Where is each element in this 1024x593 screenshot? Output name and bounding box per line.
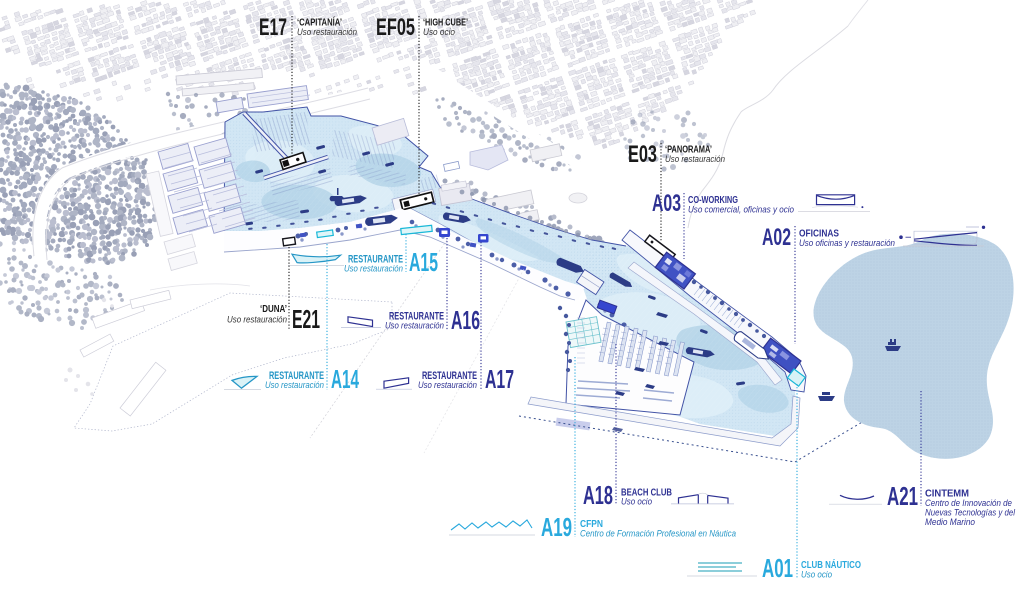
- svg-text:A17: A17: [485, 366, 514, 394]
- svg-text:Centro de Formación Profesiona: Centro de Formación Profesional en Náuti…: [580, 529, 736, 539]
- svg-text:Medio Marino: Medio Marino: [925, 517, 975, 527]
- svg-text:A19: A19: [541, 514, 572, 542]
- svg-text:Uso restauración: Uso restauración: [665, 154, 725, 164]
- svg-text:Uso ocio: Uso ocio: [801, 570, 832, 580]
- svg-text:Uso restauración: Uso restauración: [418, 380, 477, 390]
- svg-text:EF05: EF05: [376, 14, 415, 41]
- svg-text:Uso oficinas y restauración: Uso oficinas y restauración: [799, 238, 895, 248]
- svg-text:Uso restauración: Uso restauración: [227, 315, 287, 325]
- svg-text:E21: E21: [292, 306, 320, 334]
- svg-text:Uso restauración: Uso restauración: [385, 321, 444, 331]
- svg-text:A16: A16: [451, 307, 480, 335]
- svg-text:Uso restauración: Uso restauración: [344, 264, 403, 274]
- svg-text:A14: A14: [331, 366, 359, 394]
- svg-text:Centro de Innovación de: Centro de Innovación de: [925, 498, 1012, 508]
- svg-text:A01: A01: [762, 555, 793, 583]
- svg-text:Nuevas Tecnologías y del: Nuevas Tecnologías y del: [925, 508, 1016, 518]
- svg-text:E17: E17: [259, 14, 287, 41]
- svg-text:A15: A15: [409, 249, 438, 277]
- svg-text:A03: A03: [652, 190, 681, 217]
- svg-text:Uso restauración: Uso restauración: [297, 27, 357, 37]
- svg-text:Uso ocio: Uso ocio: [423, 27, 455, 37]
- svg-text:A02: A02: [762, 224, 791, 251]
- svg-text:A18: A18: [583, 482, 613, 510]
- svg-text:Uso ocio: Uso ocio: [621, 497, 652, 507]
- svg-text:A21: A21: [887, 483, 918, 511]
- svg-text:Uso comercial, oficinas y ocio: Uso comercial, oficinas y ocio: [688, 205, 794, 215]
- svg-text:‘DUNA’: ‘DUNA’: [260, 303, 287, 315]
- svg-text:E03: E03: [628, 141, 657, 168]
- svg-text:Uso restauración: Uso restauración: [265, 380, 324, 390]
